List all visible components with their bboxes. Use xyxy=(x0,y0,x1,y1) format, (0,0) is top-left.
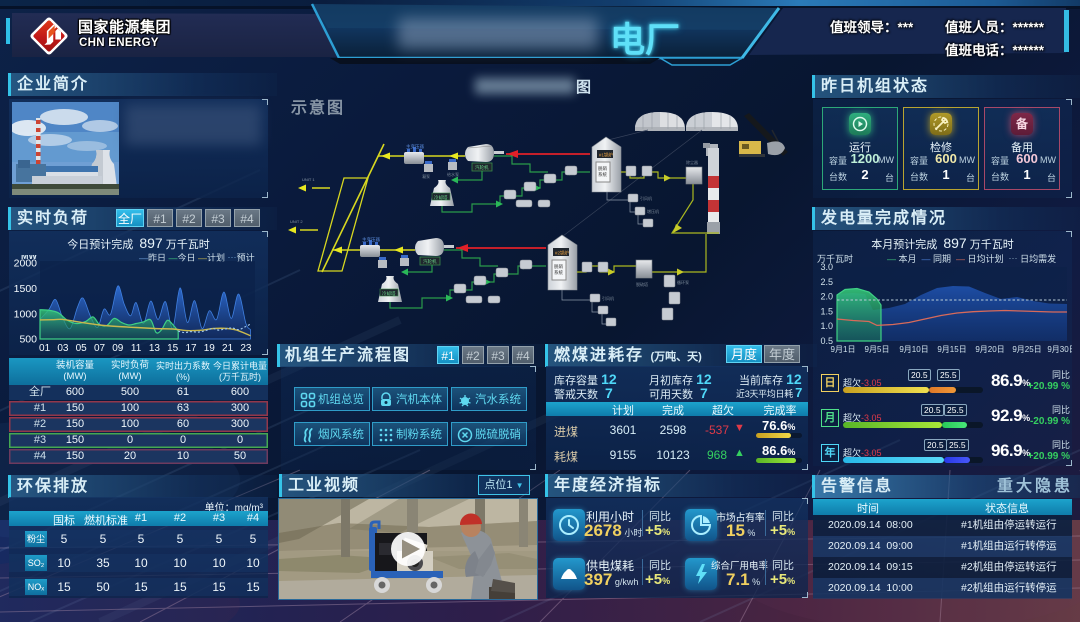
svg-text:2.0: 2.0 xyxy=(820,292,833,302)
svg-text:1000: 1000 xyxy=(14,308,38,320)
svg-text:3.0: 3.0 xyxy=(820,263,833,272)
svg-text:9月10日: 9月10日 xyxy=(899,345,928,354)
svg-text:19: 19 xyxy=(204,343,216,354)
svg-text:主变压器: 主变压器 xyxy=(406,143,424,150)
svg-text:500: 500 xyxy=(19,334,37,346)
svg-text:给水泵: 给水泵 xyxy=(447,171,459,177)
svg-text:循环泵: 循环泵 xyxy=(677,279,689,285)
svg-text:#1锅炉: #1锅炉 xyxy=(599,152,614,159)
svg-text:03: 03 xyxy=(57,343,69,354)
svg-text:引风机: 引风机 xyxy=(640,195,652,201)
svg-text:9月25日: 9月25日 xyxy=(1012,345,1041,354)
svg-text:系统: 系统 xyxy=(554,269,563,276)
svg-text:凝泵: 凝泵 xyxy=(422,173,430,179)
svg-text:07: 07 xyxy=(94,343,106,354)
svg-text:2000: 2000 xyxy=(14,258,38,270)
svg-text:脱硝: 脱硝 xyxy=(598,165,607,172)
svg-text:13: 13 xyxy=(149,343,161,354)
svg-text:1.0: 1.0 xyxy=(820,321,833,331)
svg-text:#2锅炉: #2锅炉 xyxy=(555,250,570,257)
svg-text:汽轮机: 汽轮机 xyxy=(423,258,437,265)
svg-text:UNIT 1: UNIT 1 xyxy=(302,177,315,182)
svg-text:9月30日: 9月30日 xyxy=(1047,345,1072,354)
svg-text:9月5日: 9月5日 xyxy=(865,345,890,354)
svg-text:9月20日: 9月20日 xyxy=(975,345,1004,354)
svg-text:01: 01 xyxy=(39,343,51,354)
svg-text:冷却塔: 冷却塔 xyxy=(382,290,396,297)
svg-text:9月1日: 9月1日 xyxy=(831,345,856,354)
svg-text:UNIT 2: UNIT 2 xyxy=(290,219,303,224)
svg-text:2.5: 2.5 xyxy=(820,277,833,287)
svg-text:15: 15 xyxy=(167,343,179,354)
svg-text:11: 11 xyxy=(131,343,142,354)
svg-text:除尘器: 除尘器 xyxy=(686,159,698,165)
svg-text:17: 17 xyxy=(185,343,197,354)
svg-text:系统: 系统 xyxy=(598,171,607,178)
svg-text:23: 23 xyxy=(240,343,252,354)
svg-text:1500: 1500 xyxy=(14,283,38,295)
svg-text:冷却塔: 冷却塔 xyxy=(434,194,448,201)
svg-text:1.5: 1.5 xyxy=(820,306,833,316)
svg-text:21: 21 xyxy=(222,343,234,354)
svg-text:增压机: 增压机 xyxy=(647,208,659,214)
svg-text:05: 05 xyxy=(76,343,88,354)
svg-text:脱硫塔: 脱硫塔 xyxy=(636,281,648,287)
svg-text:9月15日: 9月15日 xyxy=(937,345,966,354)
svg-text:引风机: 引风机 xyxy=(602,295,614,301)
svg-text:主变压器: 主变压器 xyxy=(362,236,380,243)
svg-text:汽轮机: 汽轮机 xyxy=(475,164,489,171)
svg-text:09: 09 xyxy=(112,343,124,354)
svg-text:脱硝: 脱硝 xyxy=(554,263,563,270)
